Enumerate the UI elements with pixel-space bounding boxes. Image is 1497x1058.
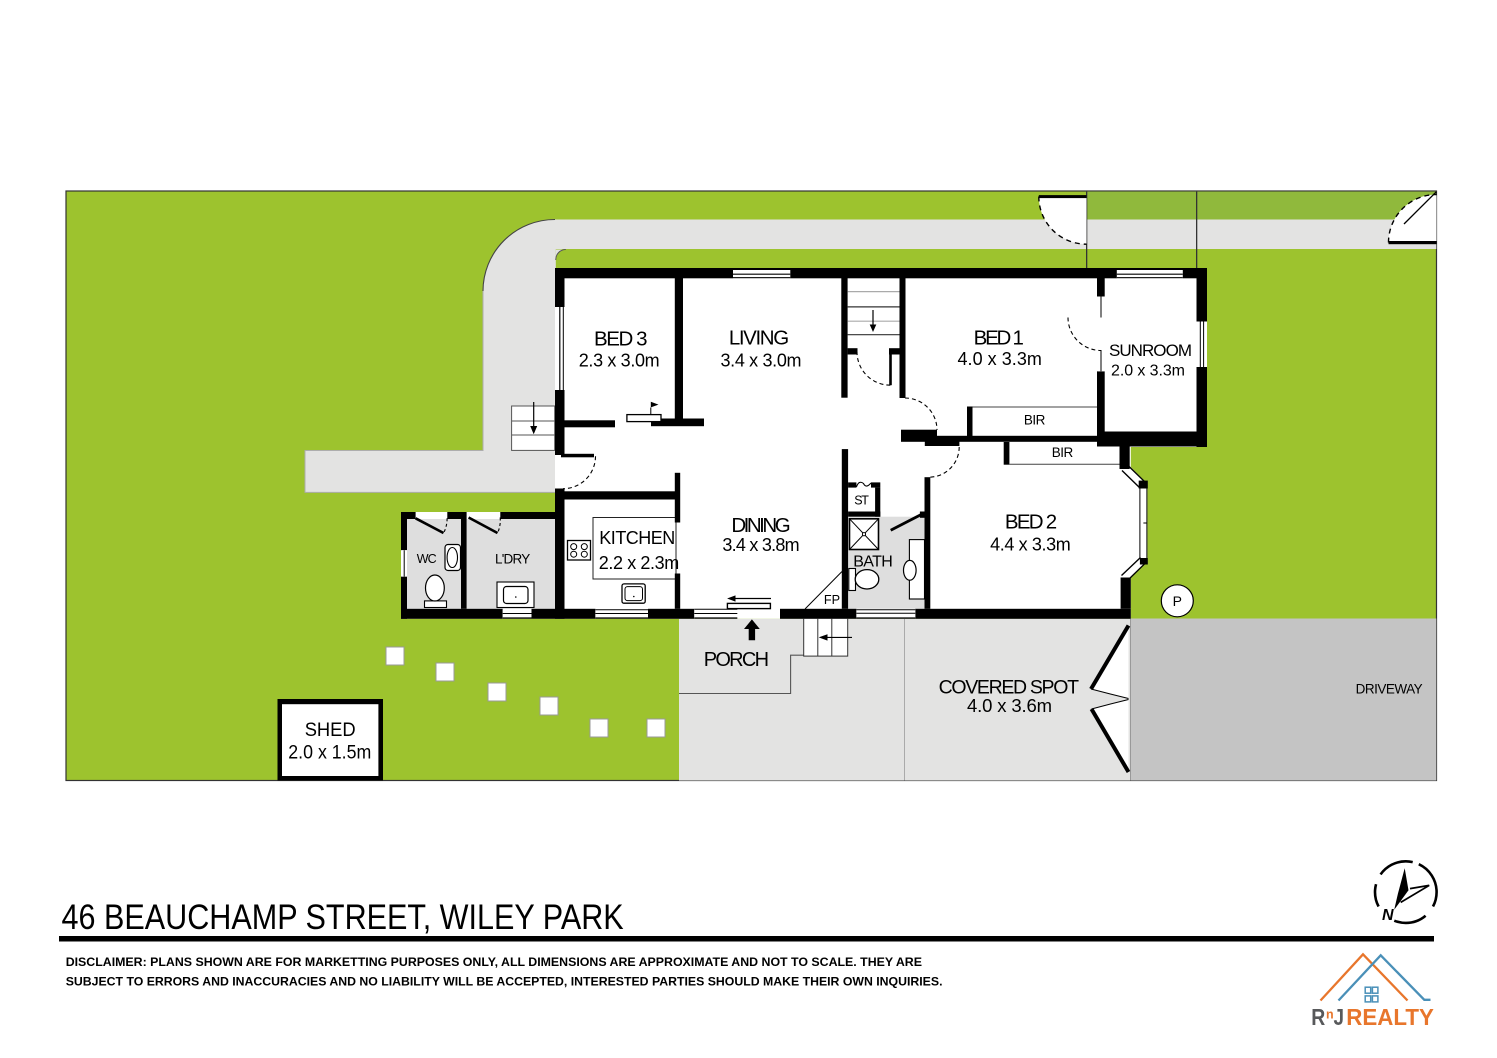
svg-text:BED 1: BED 1 bbox=[974, 326, 1024, 349]
svg-text:PORCH: PORCH bbox=[704, 649, 769, 671]
svg-text:SHED: SHED bbox=[305, 719, 356, 741]
svg-text:KITCHEN: KITCHEN bbox=[599, 528, 675, 548]
svg-text:DISCLAIMER: PLANS SHOWN ARE FO: DISCLAIMER: PLANS SHOWN ARE FOR MARKETTI… bbox=[66, 955, 922, 969]
svg-text:ST: ST bbox=[854, 494, 869, 508]
svg-text:BED 3: BED 3 bbox=[594, 327, 648, 350]
svg-text:DINING: DINING bbox=[731, 514, 790, 537]
svg-text:2.3 x 3.0m: 2.3 x 3.0m bbox=[579, 351, 660, 371]
svg-text:4.0 x 3.3m: 4.0 x 3.3m bbox=[958, 349, 1042, 369]
svg-text:WC: WC bbox=[417, 552, 437, 566]
svg-text:FP: FP bbox=[824, 593, 840, 607]
svg-text:2.0 x 1.5m: 2.0 x 1.5m bbox=[288, 743, 371, 764]
svg-text:3.4 x 3.8m: 3.4 x 3.8m bbox=[722, 535, 799, 555]
svg-text:3.4 x 3.0m: 3.4 x 3.0m bbox=[721, 351, 802, 371]
svg-text:LIVING: LIVING bbox=[729, 327, 789, 350]
svg-text:46 BEAUCHAMP STREET, WILEY PAR: 46 BEAUCHAMP STREET, WILEY PARK bbox=[62, 897, 624, 937]
svg-text:n: n bbox=[1326, 1007, 1334, 1021]
svg-text:4.0 x 3.6m: 4.0 x 3.6m bbox=[967, 695, 1052, 716]
svg-text:BATH: BATH bbox=[853, 554, 893, 571]
svg-text:R: R bbox=[1311, 1004, 1325, 1030]
svg-text:J: J bbox=[1334, 1004, 1345, 1030]
svg-text:DRIVEWAY: DRIVEWAY bbox=[1356, 681, 1423, 696]
svg-text:SUBJECT TO ERRORS AND INACCURA: SUBJECT TO ERRORS AND INACCURACIES AND N… bbox=[66, 975, 943, 989]
svg-text:SUNROOM: SUNROOM bbox=[1109, 341, 1192, 360]
svg-text:N: N bbox=[1382, 907, 1394, 924]
svg-text:2.0 x 3.3m: 2.0 x 3.3m bbox=[1111, 362, 1185, 379]
svg-text:2.2 x 2.3m: 2.2 x 2.3m bbox=[599, 553, 680, 573]
svg-text:P: P bbox=[1173, 593, 1182, 609]
svg-text:BED 2: BED 2 bbox=[1005, 511, 1057, 534]
svg-text:REALTY: REALTY bbox=[1346, 1004, 1434, 1030]
svg-text:BIR: BIR bbox=[1052, 445, 1074, 460]
svg-text:BIR: BIR bbox=[1024, 413, 1046, 428]
svg-text:4.4 x 3.3m: 4.4 x 3.3m bbox=[990, 535, 1071, 555]
svg-text:L'DRY: L'DRY bbox=[495, 551, 530, 566]
